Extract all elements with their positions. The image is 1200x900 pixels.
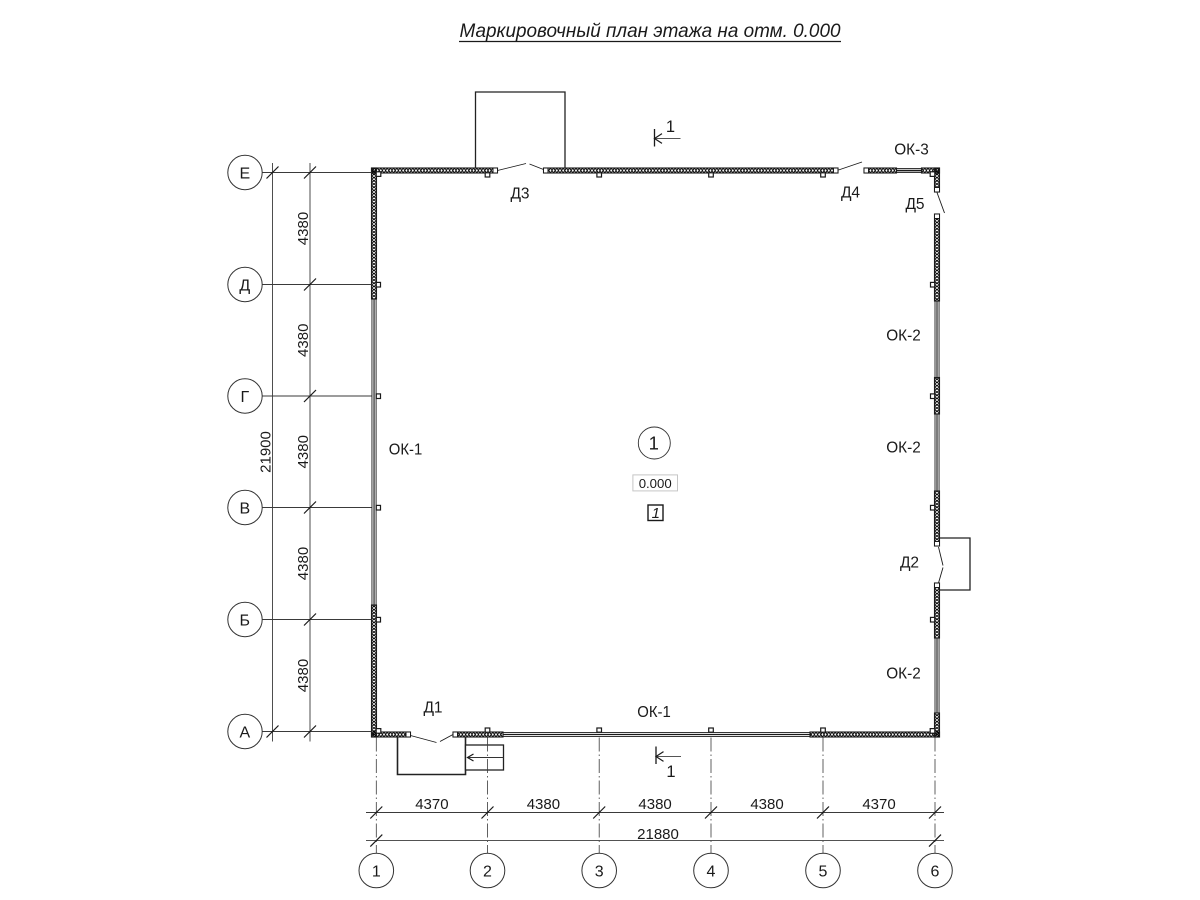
svg-text:Г: Г [240,389,249,406]
svg-text:2: 2 [483,864,492,881]
svg-text:ОК-2: ОК-2 [886,440,921,457]
svg-text:4380: 4380 [527,796,560,813]
svg-text:21900: 21900 [258,431,275,473]
svg-text:4380: 4380 [295,547,312,580]
svg-text:1: 1 [649,433,659,454]
svg-text:1: 1 [666,763,675,781]
svg-text:ОК-2: ОК-2 [886,666,921,683]
svg-text:0.000: 0.000 [639,476,672,491]
svg-text:4380: 4380 [750,796,783,813]
svg-text:Б: Б [240,612,251,629]
svg-text:Маркировочный план этажа на от: Маркировочный план этажа на отм. 0.000 [460,20,841,42]
svg-text:ОК-2: ОК-2 [886,328,921,345]
svg-text:ОК-1: ОК-1 [389,442,423,459]
svg-text:Д1: Д1 [423,700,442,717]
svg-text:4380: 4380 [295,212,312,245]
svg-text:А: А [239,724,250,741]
svg-text:ОК-1: ОК-1 [637,704,671,721]
svg-text:4380: 4380 [295,659,312,692]
svg-text:Д5: Д5 [905,196,924,213]
svg-text:1: 1 [652,505,660,522]
svg-text:Д2: Д2 [900,555,919,572]
svg-text:Д: Д [239,277,250,294]
svg-text:21880: 21880 [637,826,679,843]
svg-text:Д4: Д4 [841,185,860,202]
svg-text:3: 3 [595,864,604,881]
svg-text:4: 4 [707,864,716,881]
svg-text:ОК-3: ОК-3 [894,142,929,159]
svg-text:1: 1 [372,864,381,881]
svg-text:4380: 4380 [638,796,671,813]
svg-text:4370: 4370 [415,796,448,813]
svg-text:4380: 4380 [295,324,312,357]
svg-text:Е: Е [239,165,250,182]
svg-text:4380: 4380 [295,435,312,468]
svg-text:1: 1 [666,118,675,136]
svg-text:В: В [239,500,250,517]
svg-text:4370: 4370 [862,796,895,813]
svg-text:6: 6 [931,864,940,881]
svg-text:5: 5 [819,864,828,881]
svg-text:Д3: Д3 [510,186,529,203]
